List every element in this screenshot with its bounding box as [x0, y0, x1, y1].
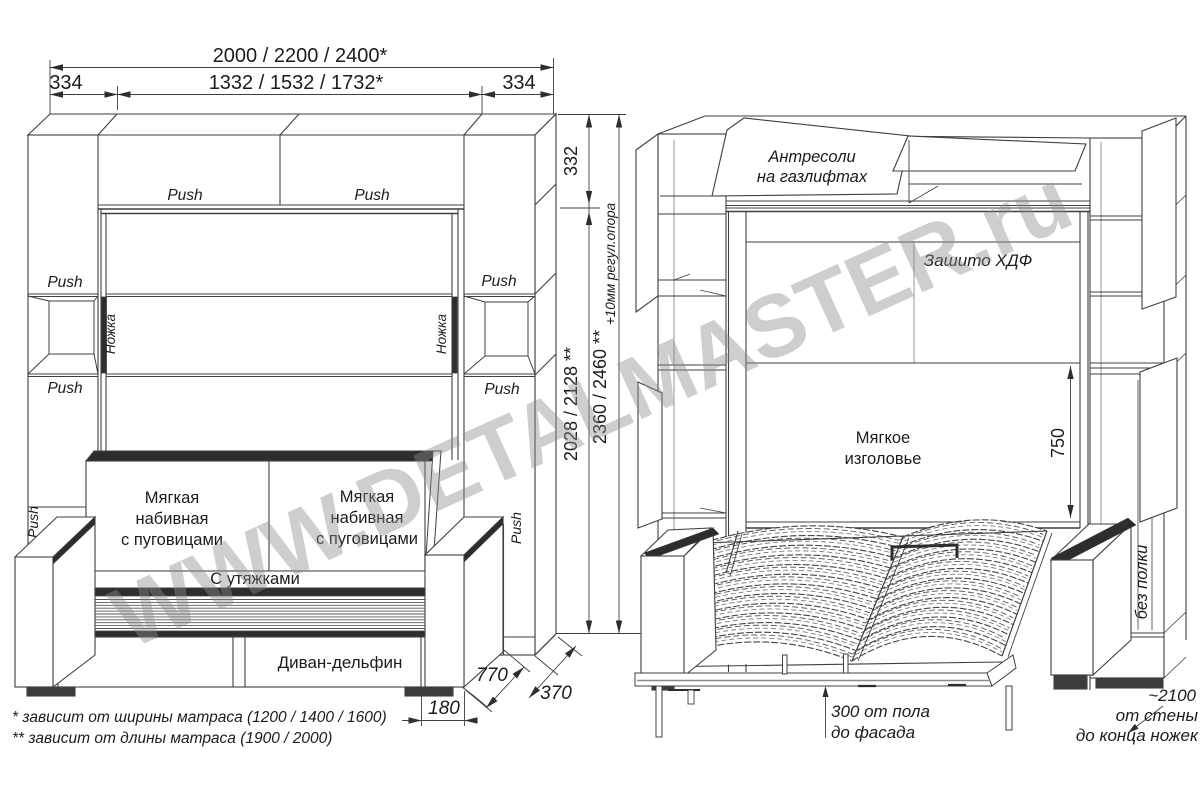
svg-text:180: 180	[428, 698, 460, 719]
svg-text:Мягкая: Мягкая	[145, 489, 199, 507]
svg-text:набивная: набивная	[136, 510, 209, 528]
svg-text:1332 / 1532 / 1732*: 1332 / 1532 / 1732*	[209, 72, 384, 94]
svg-text:334: 334	[502, 72, 535, 94]
svg-text:300 от пола: 300 от пола	[831, 702, 930, 721]
svg-text:Мягкое: Мягкое	[856, 429, 910, 447]
svg-text:Ножка: Ножка	[103, 313, 118, 354]
svg-text:2000 / 2200 / 2400*: 2000 / 2200 / 2400*	[213, 45, 388, 67]
svg-text:* зависит от ширины матраса (1: * зависит от ширины матраса (1200 / 1400…	[12, 709, 387, 726]
svg-text:от стены: от стены	[1116, 706, 1199, 725]
svg-text:370: 370	[540, 683, 572, 704]
svg-text:Push: Push	[47, 380, 82, 397]
svg-text:Push: Push	[354, 187, 389, 204]
svg-text:до фасада: до фасада	[831, 723, 915, 742]
svg-text:+10мм регул.опора: +10мм регул.опора	[603, 202, 618, 325]
svg-text:Push: Push	[47, 274, 82, 291]
svg-text:без полки: без полки	[1133, 545, 1151, 620]
svg-text:Ножка: Ножка	[434, 313, 449, 354]
svg-text:334: 334	[49, 72, 82, 94]
svg-text:** зависит от длины матраса (1: ** зависит от длины матраса (1900 / 2000…	[12, 730, 332, 747]
svg-text:Push: Push	[508, 512, 524, 544]
svg-text:770: 770	[476, 665, 508, 686]
svg-text:~2100: ~2100	[1148, 686, 1196, 705]
svg-text:на газлифтах: на газлифтах	[757, 168, 868, 186]
svg-text:Push: Push	[481, 273, 516, 290]
svg-text:Диван-дельфин: Диван-дельфин	[278, 653, 403, 672]
svg-text:332: 332	[561, 146, 581, 176]
svg-text:изголовье: изголовье	[845, 450, 922, 468]
svg-text:750: 750	[1048, 428, 1068, 458]
svg-text:Push: Push	[167, 187, 202, 204]
svg-text:до конца ножек: до конца ножек	[1076, 726, 1199, 745]
svg-text:Push: Push	[25, 506, 41, 538]
svg-text:Антресоли: Антресоли	[767, 148, 855, 166]
